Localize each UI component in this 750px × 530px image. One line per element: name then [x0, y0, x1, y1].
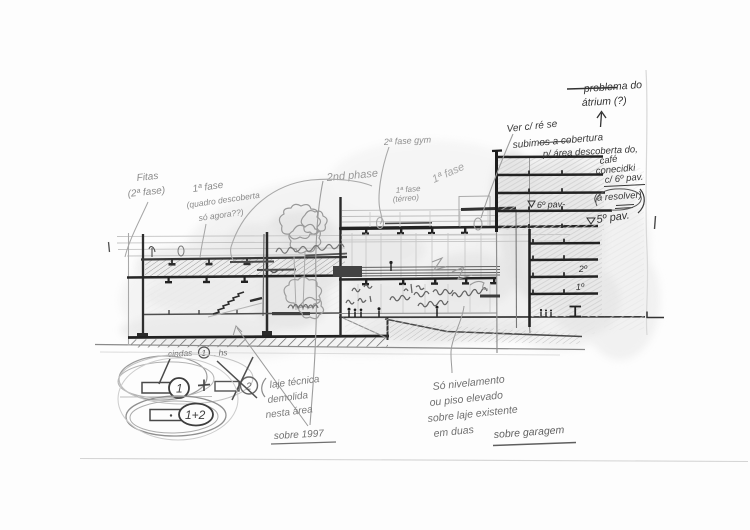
svg-text:6º pav-: 6º pav-	[537, 199, 566, 210]
svg-text:1: 1	[176, 382, 183, 396]
svg-text:Fitas: Fitas	[136, 171, 159, 184]
svg-text:1: 1	[202, 349, 206, 358]
svg-text:1º: 1º	[576, 282, 586, 292]
svg-text:átrium (?): átrium (?)	[582, 95, 628, 109]
svg-text:2º: 2º	[578, 264, 589, 275]
svg-text:1+2: 1+2	[185, 408, 206, 422]
